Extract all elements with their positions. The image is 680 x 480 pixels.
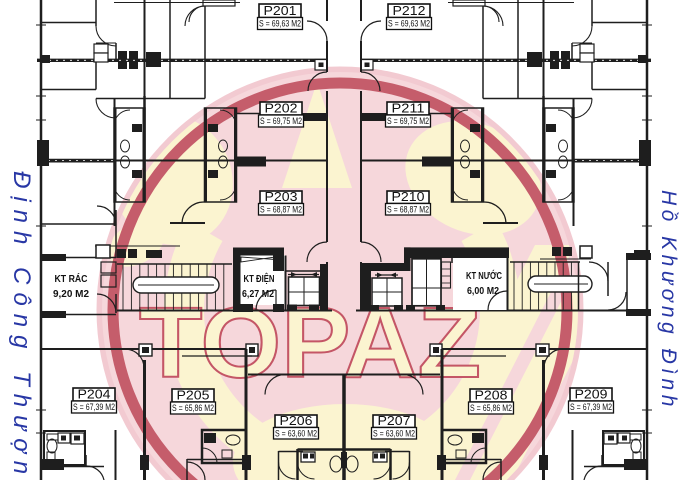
svg-text:9,20 M2: 9,20 M2 bbox=[53, 288, 89, 300]
svg-text:S = 68,87 M2: S = 68,87 M2 bbox=[260, 205, 302, 215]
svg-text:S = 69,63 M2: S = 69,63 M2 bbox=[388, 19, 430, 29]
svg-text:Định Công Thượng: Định Công Thượng bbox=[8, 171, 35, 480]
svg-text:P212: P212 bbox=[393, 4, 426, 18]
svg-text:6,27 M2: 6,27 M2 bbox=[242, 289, 274, 300]
svg-text:KT ĐIỆN: KT ĐIỆN bbox=[244, 272, 275, 285]
svg-text:P208: P208 bbox=[475, 389, 508, 403]
svg-text:S = 67,39 M2: S = 67,39 M2 bbox=[73, 402, 115, 412]
svg-text:S = 63,60 M2: S = 63,60 M2 bbox=[275, 429, 317, 439]
svg-text:S = 67,39 M2: S = 67,39 M2 bbox=[570, 402, 612, 412]
svg-text:KT NƯỚC: KT NƯỚC bbox=[466, 269, 502, 282]
svg-text:P205: P205 bbox=[177, 389, 210, 403]
svg-text:S = 68,87 M2: S = 68,87 M2 bbox=[387, 205, 429, 215]
svg-text:S = 69,63 M2: S = 69,63 M2 bbox=[259, 19, 301, 29]
svg-text:P203: P203 bbox=[265, 190, 298, 204]
svg-text:P209: P209 bbox=[575, 388, 608, 402]
svg-text:S = 69,75 M2: S = 69,75 M2 bbox=[387, 116, 429, 126]
svg-text:KT RÁC: KT RÁC bbox=[55, 272, 88, 285]
svg-text:P204: P204 bbox=[78, 388, 111, 402]
svg-text:P211: P211 bbox=[392, 102, 425, 116]
svg-text:S = 65,86 M2: S = 65,86 M2 bbox=[470, 403, 512, 413]
svg-text:S = 69,75 M2: S = 69,75 M2 bbox=[260, 116, 302, 126]
svg-text:P202: P202 bbox=[265, 102, 298, 116]
svg-text:P210: P210 bbox=[392, 190, 425, 204]
svg-text:P206: P206 bbox=[280, 414, 313, 428]
svg-text:6,00 M2: 6,00 M2 bbox=[467, 286, 499, 297]
svg-text:Hồ Khương Đình: Hồ Khương Đình bbox=[657, 190, 680, 411]
svg-text:P207: P207 bbox=[378, 414, 411, 428]
svg-text:S = 63,60 M2: S = 63,60 M2 bbox=[373, 429, 415, 439]
svg-text:P201: P201 bbox=[264, 4, 297, 18]
svg-text:S = 65,86 M2: S = 65,86 M2 bbox=[172, 403, 214, 413]
